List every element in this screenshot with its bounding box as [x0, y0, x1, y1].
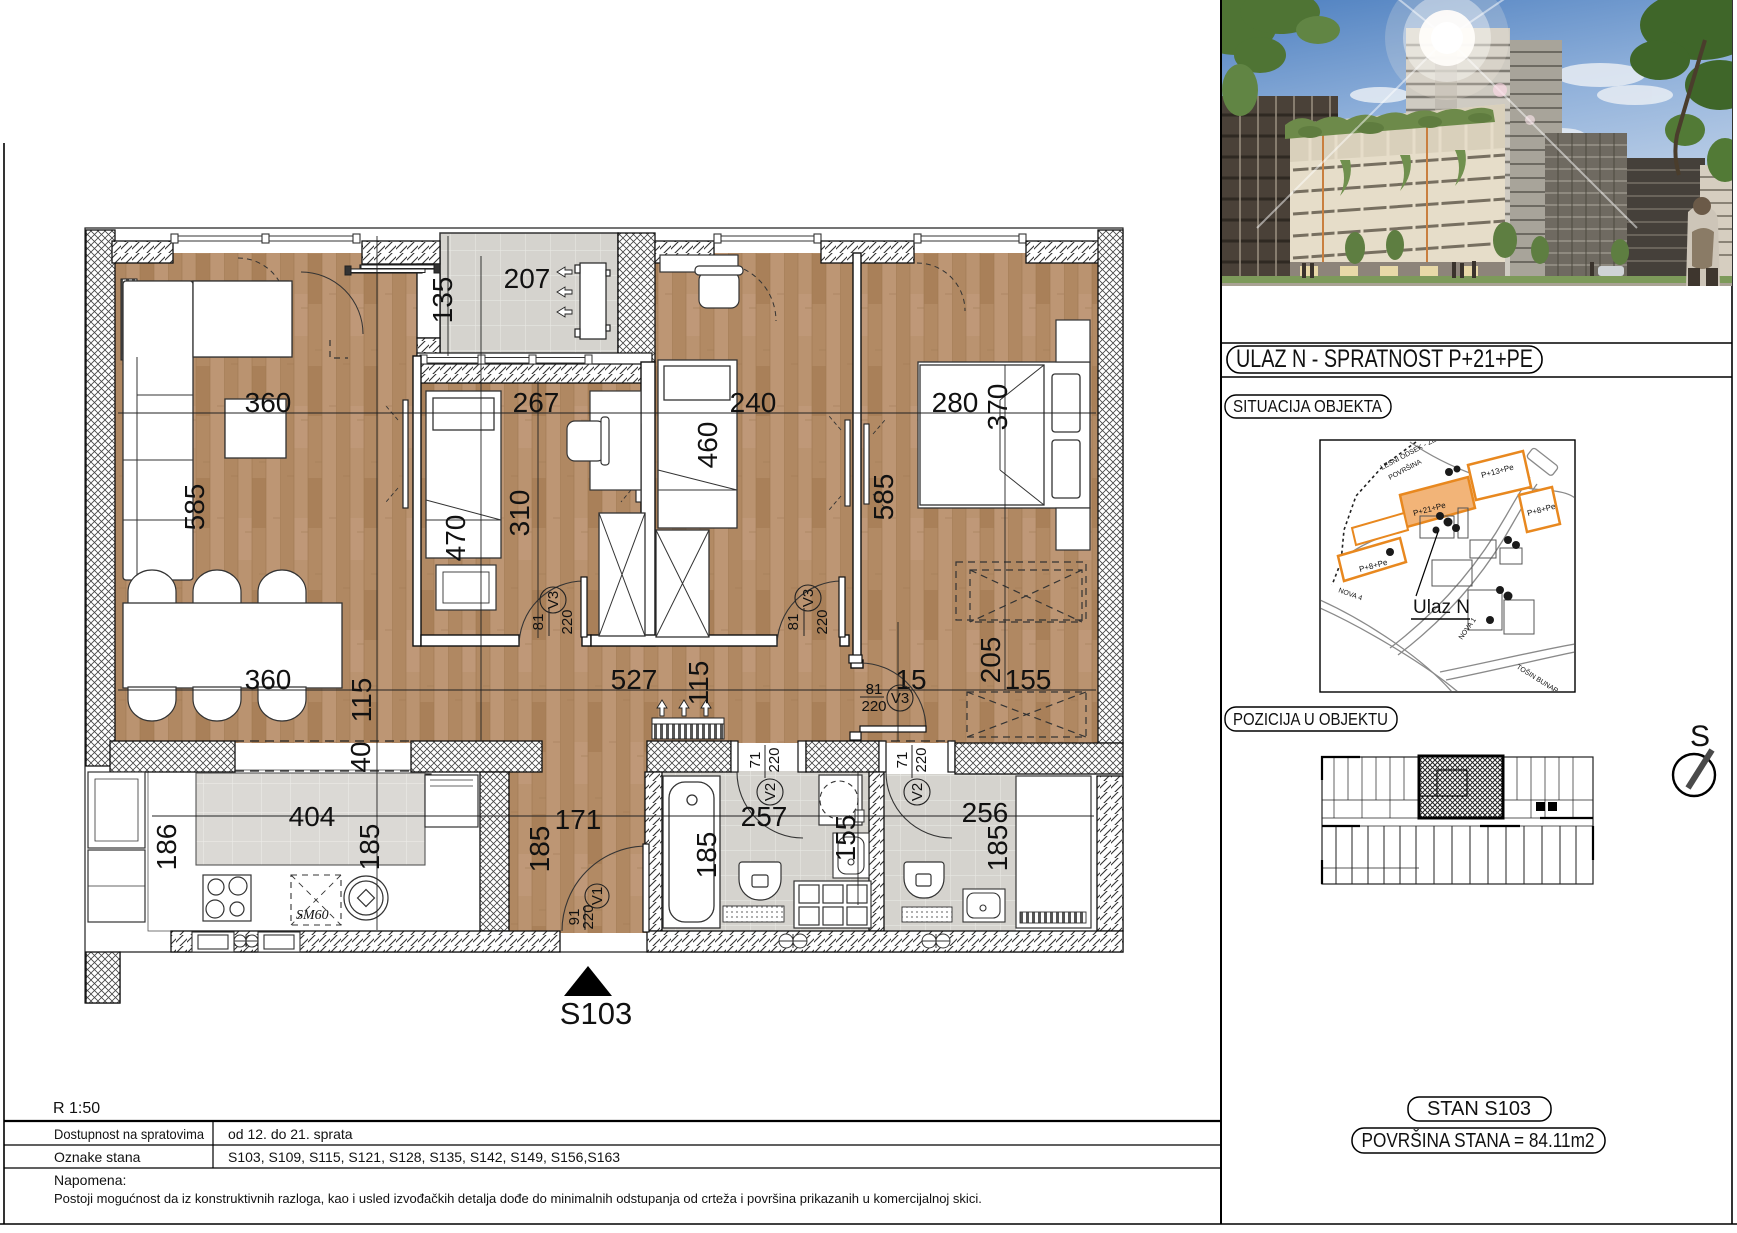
svg-text:257: 257: [741, 801, 788, 832]
svg-text:POVRŠINA STANA = 84.11m2: POVRŠINA STANA = 84.11m2: [1362, 1129, 1595, 1152]
svg-text:71: 71: [894, 752, 911, 769]
svg-text:SITUACIJA OBJEKTA: SITUACIJA OBJEKTA: [1233, 396, 1382, 416]
svg-text:V2: V2: [762, 783, 779, 801]
svg-text:115: 115: [683, 661, 714, 706]
svg-text:155: 155: [830, 815, 861, 862]
svg-text:135: 135: [427, 277, 458, 324]
svg-text:185: 185: [354, 824, 385, 871]
svg-text:370: 370: [982, 384, 1013, 431]
svg-text:V1: V1: [589, 887, 606, 905]
svg-text:527: 527: [611, 664, 658, 695]
svg-text:S: S: [1690, 720, 1710, 753]
svg-text:220: 220: [814, 609, 831, 634]
svg-text:POZICIJA U OBJEKTU: POZICIJA U OBJEKTU: [1233, 709, 1388, 729]
svg-text:185: 185: [982, 825, 1013, 872]
svg-text:Napomena:: Napomena:: [54, 1172, 126, 1188]
svg-text:267: 267: [513, 387, 560, 418]
svg-text:Ulaz N: Ulaz N: [1413, 597, 1470, 618]
svg-text:220: 220: [766, 747, 783, 772]
svg-text:R 1:50: R 1:50: [53, 1100, 100, 1117]
svg-text:310: 310: [504, 490, 535, 537]
svg-text:220: 220: [913, 747, 930, 772]
svg-text:ULAZ N - SPRATNOST P+21+PE: ULAZ N - SPRATNOST P+21+PE: [1236, 345, 1533, 373]
svg-text:115: 115: [346, 678, 377, 723]
svg-text:360: 360: [245, 387, 292, 418]
svg-text:Dostupnost na spratovima: Dostupnost na spratovima: [54, 1126, 204, 1142]
svg-text:404: 404: [289, 801, 336, 832]
svg-text:185: 185: [524, 826, 555, 873]
svg-text:V2: V2: [909, 783, 926, 801]
svg-text:470: 470: [440, 515, 471, 562]
svg-text:S103, S109, S115, S121, S128,: S103, S109, S115, S121, S128, S135, S142…: [228, 1149, 620, 1165]
svg-text:V3: V3: [891, 690, 909, 707]
svg-text:185: 185: [691, 832, 722, 879]
svg-text:207: 207: [504, 263, 551, 294]
svg-text:81: 81: [530, 614, 547, 631]
svg-text:SM60: SM60: [296, 908, 329, 923]
svg-text:V3: V3: [545, 591, 562, 609]
svg-text:81: 81: [866, 681, 883, 698]
svg-text:360: 360: [245, 664, 292, 695]
svg-text:od 12. do 21. sprata: od 12. do 21. sprata: [228, 1126, 353, 1142]
svg-text:155: 155: [1005, 664, 1052, 695]
svg-text:STAN S103: STAN S103: [1427, 1098, 1531, 1120]
svg-text:81: 81: [785, 614, 802, 631]
svg-text:Oznake stana: Oznake stana: [54, 1149, 141, 1165]
svg-text:220: 220: [559, 609, 576, 634]
svg-text:460: 460: [692, 422, 723, 469]
svg-text:256: 256: [962, 797, 1009, 828]
svg-text:280: 280: [932, 387, 979, 418]
svg-text:V3: V3: [800, 589, 817, 607]
svg-text:Postoji mogućnost da iz konstr: Postoji mogućnost da iz konstruktivnih r…: [54, 1191, 982, 1206]
svg-text:186: 186: [151, 824, 182, 871]
svg-text:205: 205: [975, 637, 1006, 684]
svg-text:240: 240: [730, 387, 777, 418]
svg-text:585: 585: [868, 474, 899, 521]
svg-text:71: 71: [747, 752, 764, 769]
svg-text:220: 220: [580, 904, 597, 929]
svg-text:585: 585: [179, 484, 210, 531]
svg-text:40: 40: [345, 741, 376, 772]
svg-text:S103: S103: [560, 996, 632, 1031]
svg-text:171: 171: [555, 804, 602, 835]
svg-text:220: 220: [861, 698, 886, 715]
